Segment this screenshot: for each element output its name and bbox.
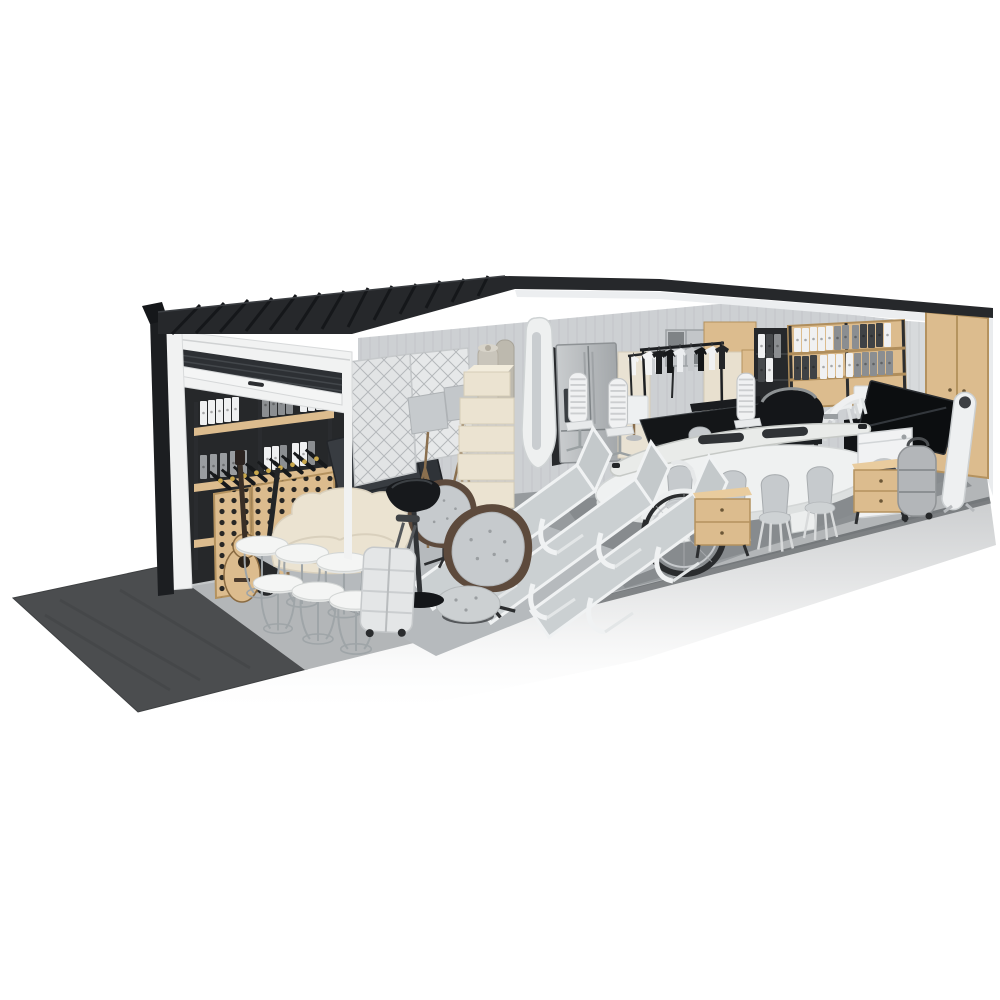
scene-canvas [0,0,1000,1000]
door-rail-right [344,398,352,560]
duffel [898,439,936,522]
ottoman [436,586,500,624]
storage-unit-render [0,0,1000,1000]
